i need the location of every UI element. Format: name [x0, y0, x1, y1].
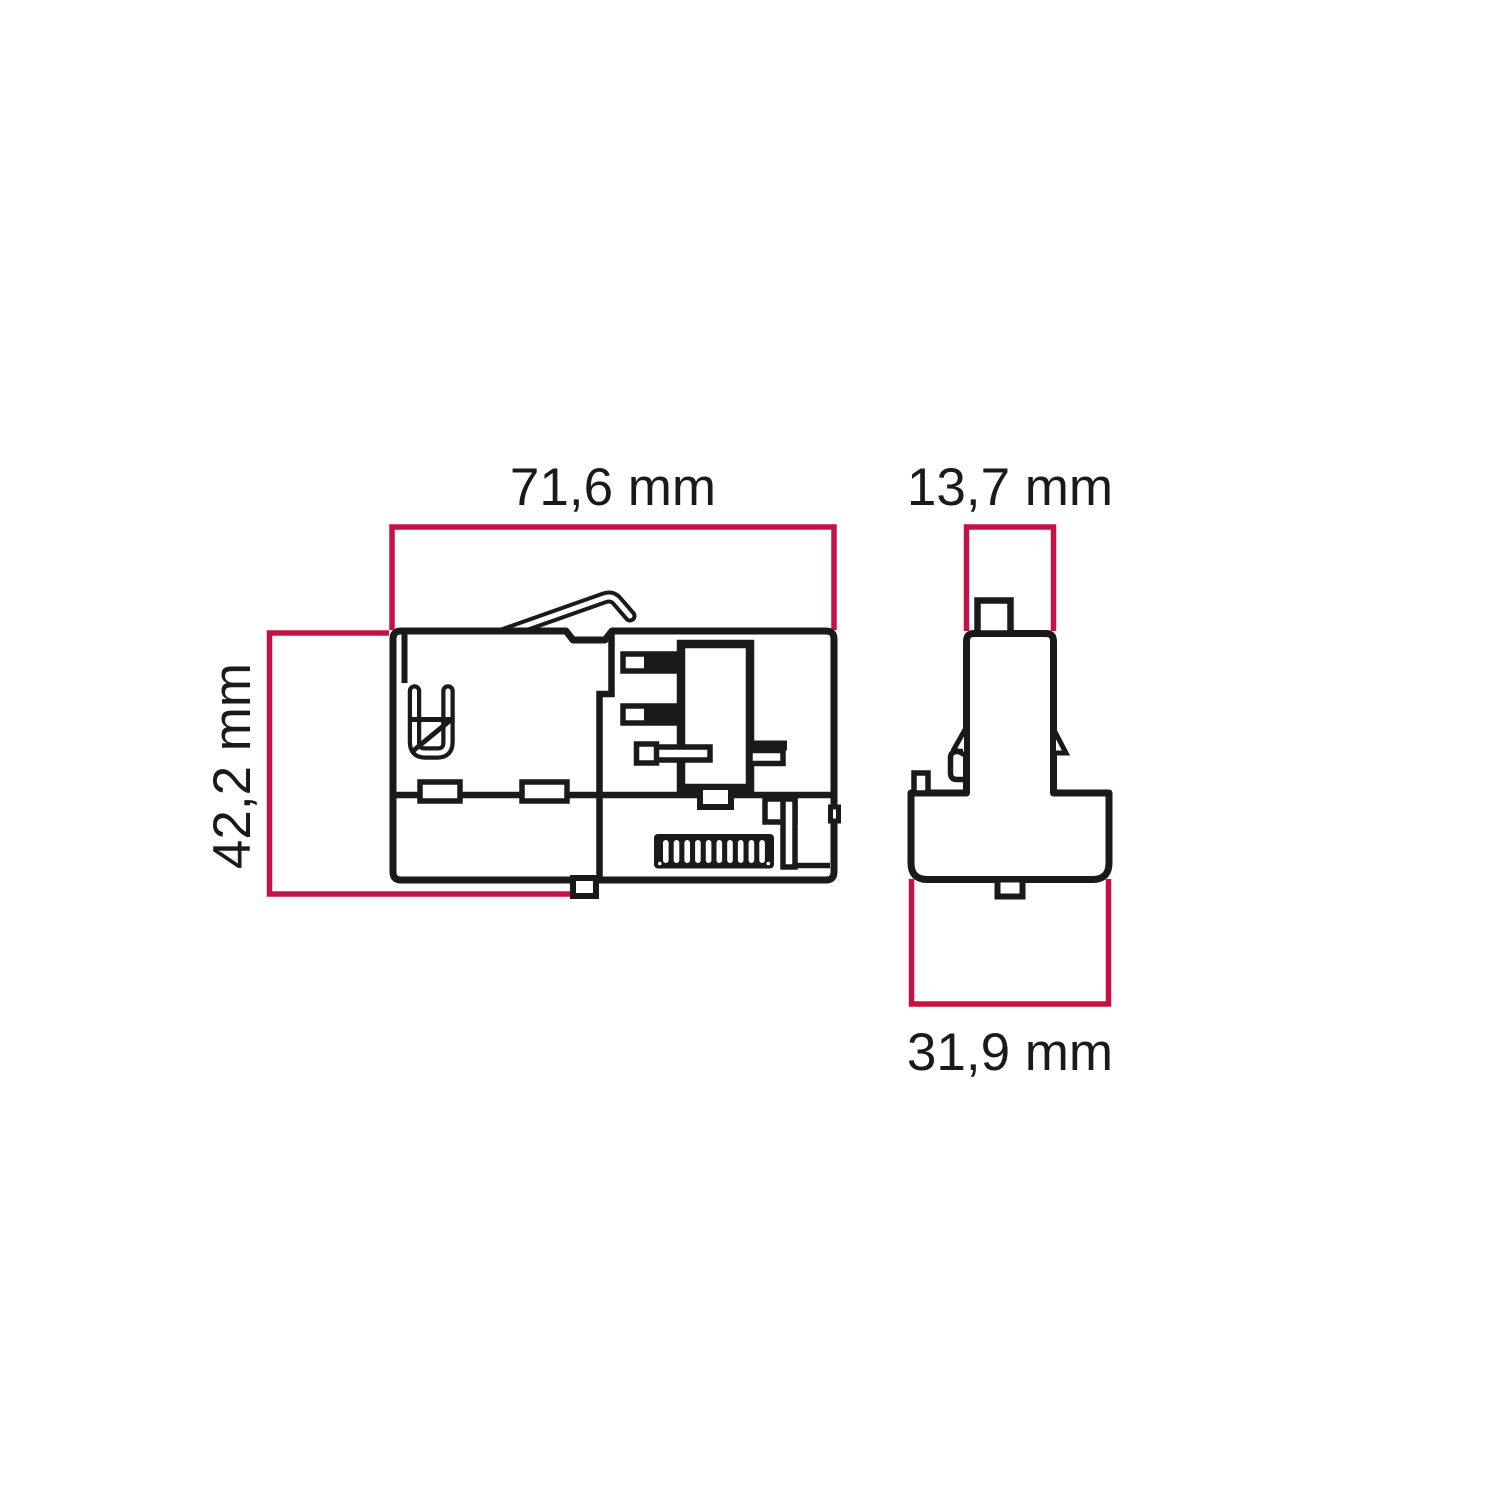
dim-label-stem-width: 13,7 mm — [907, 458, 1113, 517]
front-left-tab — [914, 773, 928, 793]
stem-top-tab — [978, 601, 1011, 634]
front-view — [911, 601, 1109, 897]
dim-bracket-width-71-6 — [392, 527, 834, 630]
dim-label-width: 71,6 mm — [510, 458, 716, 517]
ribbed-grip — [654, 834, 774, 869]
front-bottom-tab — [998, 880, 1023, 897]
front-body-outline — [911, 634, 1109, 880]
side-view — [393, 597, 839, 896]
contact-prong-right — [750, 741, 787, 764]
technical-drawing-canvas: 71,6 mm 13,7 mm 42,2 mm 31,9 mm — [0, 0, 1500, 1500]
column-bottom-tab — [700, 787, 731, 807]
bottom-left-tab — [573, 878, 596, 896]
divider-latch-1 — [420, 782, 460, 801]
stem-barb-right — [1054, 729, 1067, 753]
dim-label-height: 42,2 mm — [203, 663, 262, 869]
dimension-drawing: 71,6 mm 13,7 mm 42,2 mm 31,9 mm — [0, 0, 1500, 1500]
divider-latch-2 — [522, 782, 567, 801]
contact-column — [681, 644, 750, 788]
dim-label-body-width: 31,9 mm — [907, 1023, 1113, 1082]
